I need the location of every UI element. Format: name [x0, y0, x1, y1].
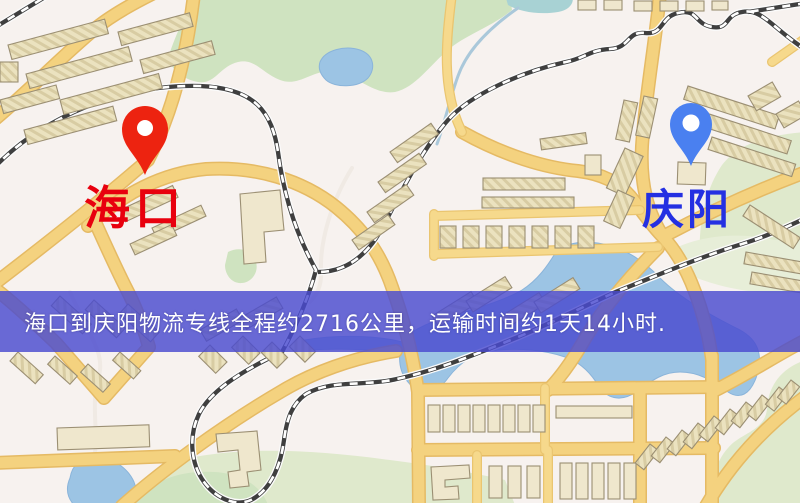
destination-city-label: 庆阳 [642, 176, 732, 237]
origin-city-label: 海口 [84, 172, 186, 238]
map-view[interactable]: 海口 庆阳 海口到庆阳物流专线全程约2716公里，运输时间约1天14小时. [0, 0, 800, 503]
route-info-text: 海口到庆阳物流专线全程约2716公里，运输时间约1天14小时. [0, 306, 666, 338]
map-canvas[interactable] [0, 0, 800, 503]
route-info-banner: 海口到庆阳物流专线全程约2716公里，运输时间约1天14小时. [0, 291, 800, 352]
